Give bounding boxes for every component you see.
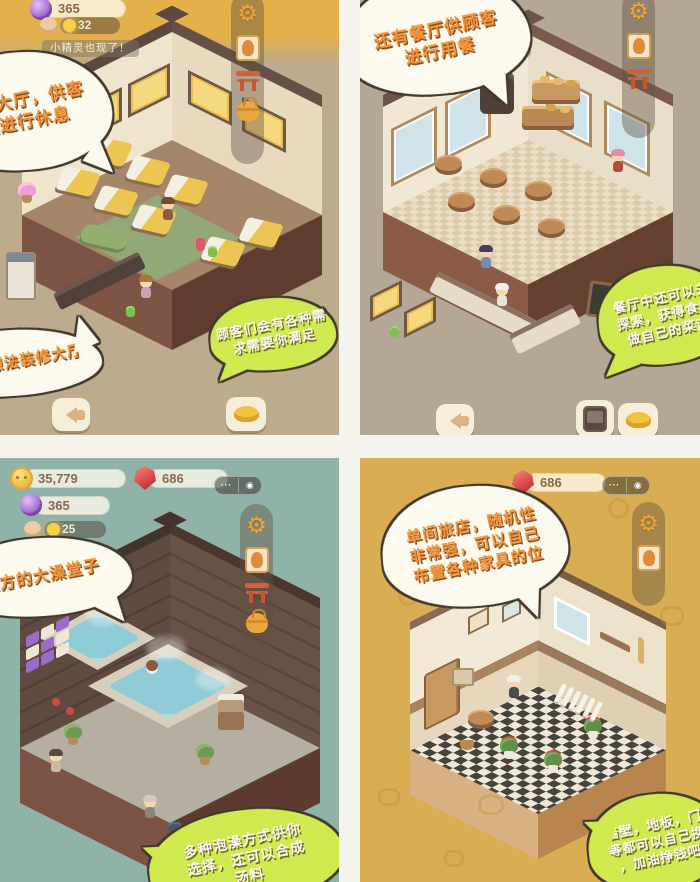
purple-gem-pill: 365 [34, 496, 110, 515]
basket [460, 740, 474, 750]
record-button[interactable]: ◉ [238, 478, 262, 493]
dining-table [480, 168, 507, 184]
flower-vase [196, 238, 205, 251]
tutorial-bubble-custom: 墙壁，地板，门 等都可以自己换 ，加油挣钱吧 [583, 786, 700, 882]
lightbulb-icon [63, 19, 76, 32]
stamp-album-icon[interactable] [245, 547, 269, 573]
dining-table [525, 181, 552, 197]
bread-display [532, 80, 580, 100]
more-button[interactable]: ⋯ [215, 478, 238, 493]
side-menu: ⚙ [632, 502, 665, 606]
tutorial-bubble-explore: 餐厅中还可以去 探索，获得食材 做自己的菜谱 [593, 258, 700, 372]
lower-window [370, 280, 402, 322]
settings-gear-icon[interactable]: ⚙ [237, 2, 258, 25]
window [554, 596, 590, 646]
bag-icon[interactable] [246, 613, 268, 633]
stamp-album-icon[interactable] [627, 33, 651, 59]
bag-icon[interactable] [237, 101, 259, 121]
steam [196, 668, 230, 690]
panel-rest-hall: 365 32 小精灵也现了！ ⚙ 休息大厅，供客 人进行休息 按自己想法装修大厅 [0, 0, 339, 435]
window [391, 106, 437, 187]
shrine-torii-icon[interactable] [628, 69, 650, 89]
wooden-bucket [52, 698, 60, 706]
storage-box [452, 668, 474, 686]
bathing-character [146, 660, 158, 671]
mini-program-capsule: ⋯ ◉ [214, 476, 262, 495]
flower-pot [544, 752, 562, 773]
tutorial-bubble-intro: 单间旅店，随机性 非常强，可以自己 布置各种家具的位 [377, 478, 573, 614]
dining-table [538, 218, 565, 234]
towel-shelf [218, 694, 244, 730]
bread-loaves [540, 76, 550, 83]
staff-character [160, 198, 176, 220]
helper-face-icon [40, 17, 57, 33]
tutorial-bubble-dining: 还有餐厅供顾客 进行用餐 [360, 0, 535, 102]
customer-character [478, 246, 494, 268]
stamp-album-icon[interactable] [637, 545, 661, 571]
side-menu: ⚙ [231, 0, 264, 164]
green-sprite [390, 326, 399, 337]
dining-table [435, 155, 462, 171]
roof-ridge [153, 512, 187, 529]
doodle-icon [608, 498, 629, 519]
settings-gear-icon[interactable]: ⚙ [628, 0, 649, 23]
coin-pill: 35,779 [24, 469, 126, 488]
side-table [468, 710, 494, 725]
tutorial-bubble-bath: 上方的大澡堂子 [0, 532, 135, 622]
item-hat-button[interactable] [618, 403, 658, 435]
stamp-album-icon[interactable] [236, 35, 260, 61]
lower-window [404, 296, 436, 338]
flower-pot [584, 718, 602, 739]
dining-table [448, 192, 475, 208]
shrine-torii-icon[interactable] [246, 583, 268, 603]
settings-gear-icon[interactable]: ⚙ [638, 512, 659, 535]
doodle-icon [660, 606, 684, 626]
helper-face-icon [24, 521, 41, 537]
tutorial-bubble-hall: 休息大厅，供客 人进行休息 [0, 46, 116, 176]
left-arrow-icon [66, 407, 77, 423]
window [188, 70, 232, 126]
hat-item-icon [626, 412, 651, 428]
locker-character [48, 750, 64, 772]
side-menu: ⚙ [622, 0, 655, 138]
steam [146, 636, 186, 660]
wall-shelf [600, 631, 630, 653]
potted-plant [196, 744, 214, 765]
hanging-charm [638, 636, 644, 665]
panel-restaurant: 渔家出现了！ ⚙ 还有餐厅供顾客 进行用餐 餐厅中还可以去 探索，获得食材 做自… [360, 0, 700, 435]
roof-ridge [155, 6, 189, 23]
innkeeper-character [506, 676, 522, 698]
doodle-icon [444, 850, 464, 867]
potted-plant [64, 724, 82, 745]
bubble-text-line: 上方的大澡堂子 [0, 555, 102, 598]
doodle-icon [378, 788, 400, 806]
item-stove-button[interactable] [576, 400, 614, 435]
dining-table [493, 205, 520, 221]
bubble-text-line: 按自己想法装修大厅 [0, 341, 85, 385]
item-hat-button[interactable] [226, 397, 266, 431]
settings-gear-icon[interactable]: ⚙ [246, 514, 267, 537]
wall-picture-frame [468, 606, 489, 635]
hat-item-icon [234, 406, 259, 422]
left-arrow-icon [450, 413, 461, 429]
mini-program-capsule: ⋯ ◉ [602, 476, 650, 495]
stove-item-icon [583, 406, 607, 432]
side-menu: ⚙ [240, 504, 273, 674]
vending-cabinet [6, 252, 36, 300]
screenshot-collage: 365 32 小精灵也现了！ ⚙ 休息大厅，供客 人进行休息 按自己想法装修大厅 [0, 0, 700, 882]
back-button[interactable] [436, 404, 474, 435]
tutorial-bubble-needs: 顾客们会有各种需 求需要你满足 [207, 293, 339, 376]
flower-pot [500, 738, 518, 759]
panel-single-room: 686 ⋯ ◉ ⚙ 单间旅店，随机性 非常强，可以自己 布置各种家具的位 墙壁，… [360, 458, 700, 882]
purple-gem-pill: 365 [44, 0, 126, 18]
lightbulb-icon [47, 523, 60, 536]
shrine-torii-icon[interactable] [237, 71, 259, 91]
window [128, 63, 170, 118]
back-button[interactable] [52, 398, 90, 431]
tutorial-bubble-decorate: 按自己想法装修大厅 [0, 324, 104, 402]
doodle-icon [478, 794, 504, 815]
chef-character [494, 284, 510, 306]
panel-bathhouse: 35,779 686 365 25 ⋯ ◉ ⚙ 上方的大澡堂子 多种泡澡方式供你 [0, 458, 339, 882]
green-sprite [208, 246, 217, 257]
purple-gem-icon [20, 494, 42, 516]
flower-plant [18, 182, 36, 203]
old-man-character [142, 796, 158, 818]
green-sprite [126, 306, 135, 317]
more-button[interactable]: ⋯ [603, 478, 626, 493]
record-button[interactable]: ◉ [626, 478, 650, 493]
waitress-character [610, 150, 626, 172]
bread-display [522, 106, 574, 126]
guest-character [138, 276, 154, 298]
coin-icon [10, 467, 33, 490]
